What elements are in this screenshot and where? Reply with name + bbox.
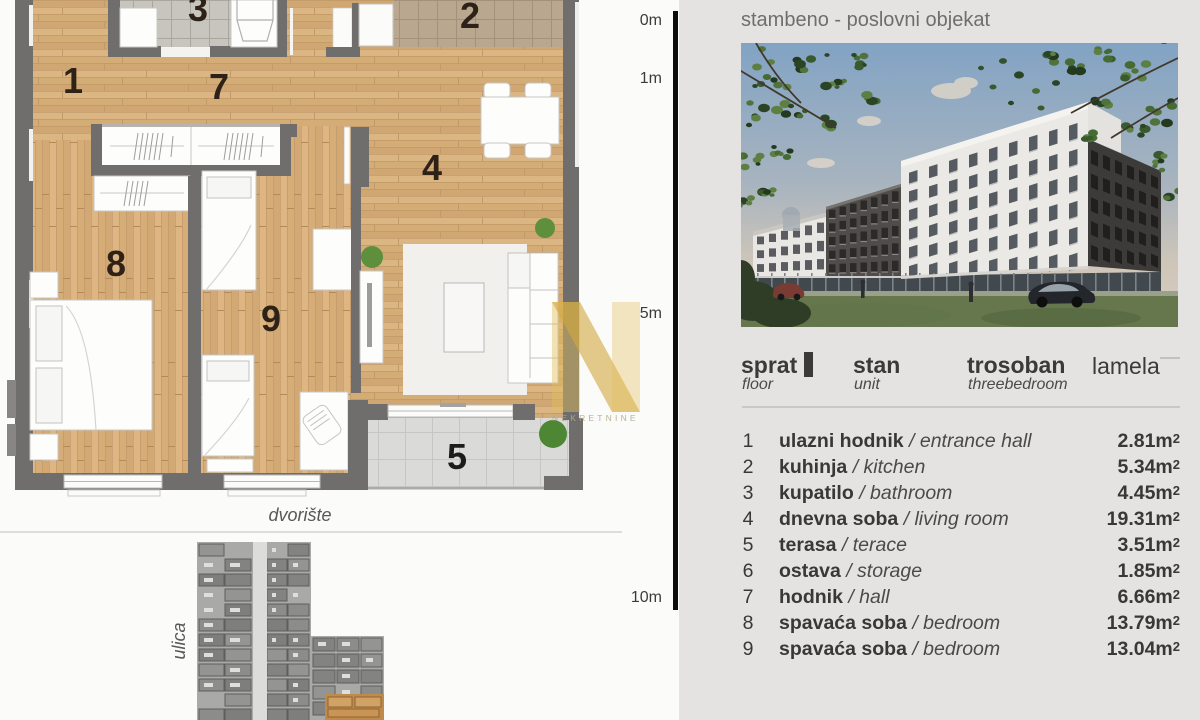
svg-text:2: 2 — [460, 0, 480, 36]
svg-text:1: 1 — [63, 60, 83, 101]
svg-text:4: 4 — [422, 147, 442, 188]
svg-text:3: 3 — [188, 0, 208, 29]
svg-text:7: 7 — [209, 66, 229, 107]
svg-text:9: 9 — [261, 298, 281, 339]
svg-text:8: 8 — [106, 243, 126, 284]
svg-text:NEKRETNINE: NEKRETNINE — [552, 413, 639, 423]
svg-text:5: 5 — [447, 436, 467, 477]
